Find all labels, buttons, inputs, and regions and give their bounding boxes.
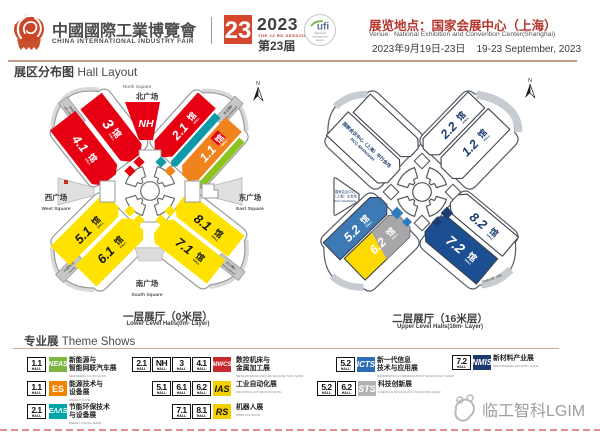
svg-text:（上海）主会场: （上海）主会场 bbox=[333, 194, 357, 199]
svg-text:西广场: 西广场 bbox=[45, 192, 68, 202]
svg-text:South Square: South Square bbox=[131, 292, 163, 298]
svg-text:N: N bbox=[528, 78, 532, 84]
svg-text:北广场: 北广场 bbox=[136, 91, 159, 101]
svg-text:North Square: North Square bbox=[123, 84, 152, 90]
svg-text:NH: NH bbox=[138, 118, 154, 130]
svg-text:东广场: 东广场 bbox=[239, 192, 262, 202]
svg-text:East Square: East Square bbox=[236, 206, 264, 212]
svg-text:国家会议中心: 国家会议中心 bbox=[335, 189, 356, 194]
svg-text:West Square: West Square bbox=[42, 206, 71, 212]
svg-text:南广场: 南广场 bbox=[136, 278, 159, 288]
svg-text:N: N bbox=[256, 81, 260, 87]
svg-text:NCC-SHANGHAI: NCC-SHANGHAI bbox=[334, 199, 356, 203]
